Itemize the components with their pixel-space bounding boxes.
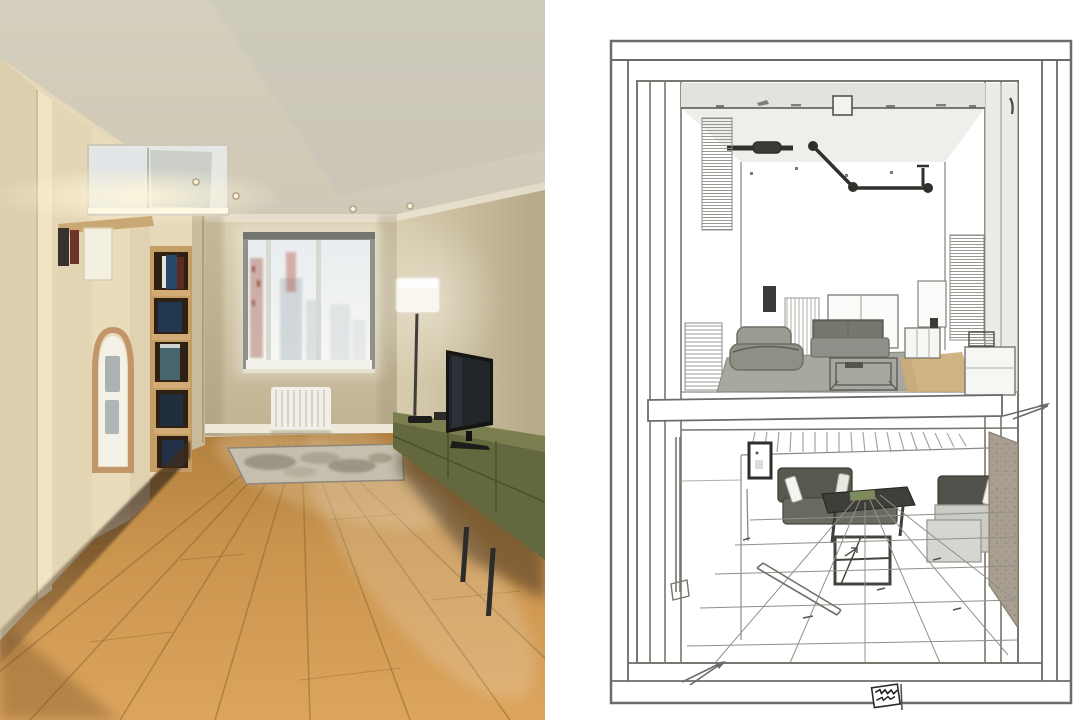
floor-slab — [648, 395, 1050, 421]
right-blinds — [950, 235, 984, 340]
bookshelf — [150, 246, 192, 472]
wall-art-sketch — [763, 286, 776, 312]
sketch-drawing — [545, 0, 1080, 720]
sketch-sofa — [811, 320, 889, 357]
recessed-spotlight — [349, 205, 357, 213]
window — [236, 226, 382, 376]
radiator — [271, 387, 331, 435]
recessed-spotlight — [192, 178, 200, 186]
composite-image — [0, 0, 1080, 720]
lower-view — [671, 428, 1018, 663]
recessed-spotlight — [232, 192, 240, 200]
left-blinds — [702, 118, 732, 230]
left-radiator-sketch — [685, 323, 722, 390]
ceiling-dots — [750, 167, 893, 177]
ceiling-fixture — [833, 96, 852, 115]
rug — [228, 444, 404, 484]
sketch-panel — [545, 0, 1080, 720]
photo-render — [0, 0, 545, 720]
stamp-tick — [901, 684, 902, 710]
slab-leader-arrow — [1003, 403, 1050, 419]
approval-stamp — [872, 684, 901, 707]
recessed-spotlight — [406, 202, 414, 210]
photo-panel — [0, 0, 545, 720]
remote-on-console — [408, 416, 432, 423]
door-pull-strip — [671, 437, 689, 600]
basket — [969, 332, 994, 346]
upper-view — [681, 83, 1018, 395]
